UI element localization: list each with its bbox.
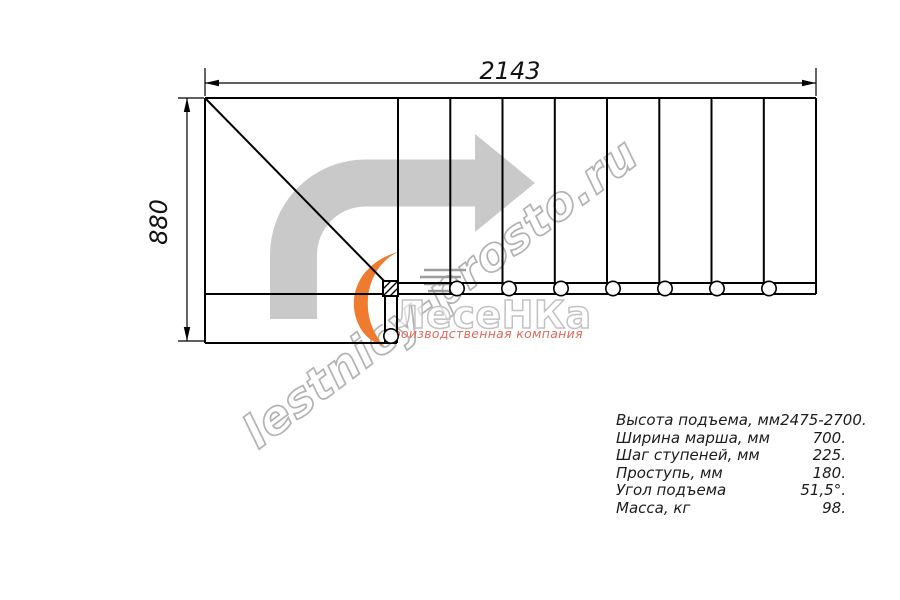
spec-table: Высота подъема, мм 2475-2700. Ширина мар… (616, 412, 846, 518)
spec-value: 225. (813, 447, 846, 465)
hatch-marker (383, 281, 398, 296)
dimension-left: 880 (145, 98, 204, 341)
stair-drawing-page: lestnicy-prosto.ru ЛесеНКа Производствен… (0, 0, 900, 600)
spec-value: 2475-2700. (780, 412, 867, 430)
spec-label: Проступь, мм (616, 465, 723, 483)
spec-value: 700. (813, 430, 846, 448)
spec-value: 180. (813, 465, 846, 483)
spec-value: 51,5°. (800, 482, 846, 500)
spec-row-height: Высота подъема, мм 2475-2700. (616, 412, 846, 430)
spec-row-angle: Угол подъема 51,5°. (616, 482, 846, 500)
spec-label: Ширина марша, мм (616, 430, 770, 448)
spec-label: Масса, кг (616, 500, 690, 518)
dim-height-label: 880 (145, 199, 173, 245)
spec-label: Высота подъема, мм (616, 412, 780, 430)
spec-row-flight-width: Ширина марша, мм 700. (616, 430, 846, 448)
spec-label: Шаг ступеней, мм (616, 447, 760, 465)
dimension-top: 2143 (205, 57, 816, 96)
spec-value: 98. (822, 500, 846, 518)
spec-row-mass: Масса, кг 98. (616, 500, 846, 518)
dim-width-label: 2143 (479, 57, 540, 85)
logo-tagline: Производственная компания (383, 326, 583, 341)
spec-label: Угол подъема (616, 482, 726, 500)
spec-row-tread: Проступь, мм 180. (616, 465, 846, 483)
spec-row-step-pitch: Шаг ступеней, мм 225. (616, 447, 846, 465)
